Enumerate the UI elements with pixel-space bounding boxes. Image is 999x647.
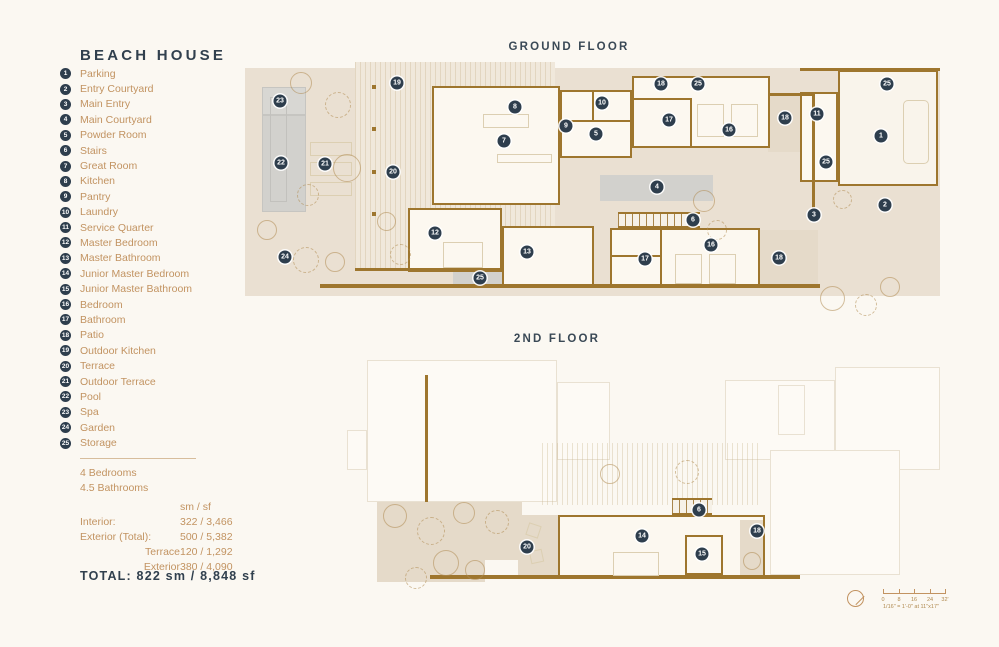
ruler-tick (883, 589, 884, 594)
plant-icon (820, 286, 845, 311)
legend-item-patio: 18Patio (60, 328, 260, 343)
legend-item-master-bathroom: 13Master Bathroom (60, 251, 260, 266)
room-marker-25: 25 (881, 78, 894, 91)
perimeter-wall-bottom (320, 284, 820, 288)
pergola-post (372, 212, 376, 216)
second-floor-plan: 614151820 (345, 352, 940, 584)
room-service-quarter (800, 92, 838, 182)
suite1-divider (690, 100, 692, 146)
room-marker-13: 13 (521, 246, 534, 259)
legend-number: 2 (60, 84, 71, 95)
plant-icon (465, 560, 485, 580)
legend-item-bathroom: 17Bathroom (60, 312, 260, 327)
area-stats: 4 Bedrooms 4.5 Bathrooms sm / sf Interio… (80, 466, 260, 575)
legend-label: Outdoor Terrace (80, 376, 156, 388)
patio-panel (757, 230, 818, 287)
legend-number: 23 (60, 407, 71, 418)
room-marker-11: 11 (811, 108, 824, 121)
plant-icon (257, 220, 277, 240)
room-marker-20: 20 (521, 541, 534, 554)
car-outline (903, 100, 929, 164)
room-marker-9: 9 (560, 120, 573, 133)
legend-label: Outdoor Kitchen (80, 345, 156, 357)
room-marker-1: 1 (875, 130, 888, 143)
legend-label: Great Room (80, 160, 137, 172)
plant-icon (675, 460, 699, 484)
room-marker-6: 6 (687, 214, 700, 227)
room-marker-23: 23 (274, 95, 287, 108)
legend-number: 10 (60, 207, 71, 218)
room-marker-18: 18 (655, 78, 668, 91)
legend-label: Pool (80, 391, 101, 403)
plant-icon (600, 464, 620, 484)
utility-divider (562, 120, 630, 122)
legend-item-garden: 24Garden (60, 420, 260, 435)
legend-label: Bedroom (80, 299, 123, 311)
legend-number: 18 (60, 330, 71, 341)
legend-item-storage: 25Storage (60, 435, 260, 450)
plant-icon (485, 510, 509, 534)
ruler-tick-label: 16 (911, 597, 917, 603)
legend-number: 24 (60, 422, 71, 433)
legend-label: Junior Master Bathroom (80, 283, 192, 295)
legend-number: 5 (60, 130, 71, 141)
legend-label: Storage (80, 437, 117, 449)
suite1-divider (634, 98, 692, 100)
legend-item-master-bedroom: 12Master Bedroom (60, 235, 260, 250)
legend-label: Terrace (80, 360, 115, 372)
wall-segment (425, 375, 428, 505)
legend-number: 13 (60, 253, 71, 264)
wall-segment (768, 93, 815, 96)
stats-rows: Interior:322 / 3,466Exterior (Total):500… (80, 515, 260, 575)
room-marker-7: 7 (498, 135, 511, 148)
plant-icon (743, 552, 761, 570)
roof-outline (770, 450, 900, 575)
legend-number: 25 (60, 438, 71, 449)
roof-outline (367, 360, 557, 502)
plant-icon (880, 277, 900, 297)
stats-row: Exterior (Total):500 / 5,382 (80, 530, 260, 545)
ground-floor-plan: 1234567891011121316161717181818192021222… (245, 62, 940, 300)
room-marker-8: 8 (509, 101, 522, 114)
plant-icon (325, 252, 345, 272)
room-marker-14: 14 (636, 530, 649, 543)
legend-number: 14 (60, 268, 71, 279)
legend-item-pool: 22Pool (60, 389, 260, 404)
plant-icon (297, 184, 319, 206)
storage-top-wall (800, 68, 940, 71)
plant-icon (325, 92, 351, 118)
legend-item-service-quarter: 11Service Quarter (60, 220, 260, 235)
legend-item-main-entry: 3Main Entry (60, 97, 260, 112)
room-marker-22: 22 (275, 157, 288, 170)
legend-label: Main Entry (80, 98, 130, 110)
legend-item-kitchen: 8Kitchen (60, 174, 260, 189)
legend-item-parking: 1Parking (60, 66, 260, 81)
room-marker-17: 17 (663, 114, 676, 127)
dining-table (483, 114, 529, 128)
legend-item-pantry: 9Pantry (60, 189, 260, 204)
room-marker-19: 19 (391, 77, 404, 90)
room-marker-4: 4 (651, 181, 664, 194)
legend-item-great-room: 7Great Room (60, 158, 260, 173)
legend-item-laundry: 10Laundry (60, 205, 260, 220)
room-marker-5: 5 (590, 128, 603, 141)
plant-icon (855, 294, 877, 316)
room-marker-21: 21 (319, 158, 332, 171)
room-marker-18: 18 (779, 112, 792, 125)
plant-icon (833, 190, 852, 209)
stats-row: Terrace120 / 1,292 (80, 545, 260, 560)
legend-item-outdoor-kitchen: 19Outdoor Kitchen (60, 343, 260, 358)
ruler-tick-label: 8 (897, 597, 900, 603)
plant-icon (377, 212, 396, 231)
master-bed-outline (443, 242, 483, 268)
ruler-tick (945, 589, 946, 594)
legend-label: Garden (80, 422, 115, 434)
room-marker-10: 10 (596, 97, 609, 110)
legend-label: Entry Courtyard (80, 83, 154, 95)
ruler-tick (930, 589, 931, 594)
room-marker-6: 6 (693, 504, 706, 517)
room-marker-2: 2 (879, 199, 892, 212)
legend-label: Powder Room (80, 129, 147, 141)
legend-label: Kitchen (80, 175, 115, 187)
legend-number: 17 (60, 314, 71, 325)
legend-item-outdoor-terrace: 21Outdoor Terrace (60, 374, 260, 389)
legend-number: 8 (60, 176, 71, 187)
legend-number: 6 (60, 145, 71, 156)
legend-item-stairs: 6Stairs (60, 143, 260, 158)
total-area: TOTAL: 822 sm / 8,848 sf (80, 569, 256, 583)
utility-divider (592, 92, 594, 122)
ruler-tick (914, 589, 915, 594)
legend-number: 21 (60, 376, 71, 387)
legend-number: 3 (60, 99, 71, 110)
bathrooms-count: 4.5 Bathrooms (80, 481, 260, 496)
room-marker-20: 20 (387, 166, 400, 179)
legend-label: Master Bedroom (80, 237, 158, 249)
legend-label: Junior Master Bedroom (80, 268, 189, 280)
kitchen-island (497, 154, 552, 163)
plant-icon (693, 190, 715, 212)
legend-item-entry-courtyard: 2Entry Courtyard (60, 81, 260, 96)
suite2-divider (660, 230, 662, 286)
legend-number: 16 (60, 299, 71, 310)
legend-label: Parking (80, 68, 116, 80)
ground-floor-title: GROUND FLOOR (439, 41, 699, 53)
plant-icon (707, 220, 727, 240)
legend-number: 7 (60, 161, 71, 172)
plant-icon (405, 567, 427, 589)
legend-item-spa: 23Spa (60, 405, 260, 420)
legend-item-terrace: 20Terrace (60, 358, 260, 373)
legend-number: 22 (60, 391, 71, 402)
room-marker-12: 12 (429, 227, 442, 240)
legend-label: Spa (80, 406, 99, 418)
room-marker-25: 25 (474, 272, 487, 285)
ruler-tick-label: 0 (881, 597, 884, 603)
ruler-tick-label: 32' (941, 597, 948, 603)
plant-icon (433, 550, 459, 576)
bedrooms-count: 4 Bedrooms (80, 466, 260, 481)
room-marker-25: 25 (692, 78, 705, 91)
room-legend: 1Parking2Entry Courtyard3Main Entry4Main… (60, 66, 260, 451)
legend-label: Bathroom (80, 314, 126, 326)
room-junior-master-suite (558, 515, 765, 578)
legend-number: 20 (60, 361, 71, 372)
bed-outline (709, 254, 736, 284)
roof-outline (347, 430, 367, 470)
legend-number: 15 (60, 284, 71, 295)
page-title: BEACH HOUSE (80, 47, 226, 64)
ruler-tick (899, 589, 900, 594)
room-marker-3: 3 (808, 209, 821, 222)
pergola-post (372, 170, 376, 174)
legend-number: 4 (60, 114, 71, 125)
legend-item-powder-room: 5Powder Room (60, 128, 260, 143)
scale-bar-group: 08162432' 1/16" = 1'-0" at 11"x17" (845, 585, 965, 617)
plant-icon (333, 154, 361, 182)
plant-icon (417, 517, 445, 545)
legend-label: Main Courtyard (80, 114, 152, 126)
legend-number: 19 (60, 345, 71, 356)
room-marker-18: 18 (751, 525, 764, 538)
plant-icon (293, 247, 319, 273)
scale-ruler: 08162432' (883, 589, 945, 597)
room-marker-15: 15 (696, 548, 709, 561)
stats-unit-header: sm / sf (80, 500, 260, 515)
pool-lane (270, 97, 287, 202)
legend-label: Master Bathroom (80, 252, 161, 264)
legend-label: Laundry (80, 206, 118, 218)
skylight-outline (778, 385, 805, 435)
room-marker-25: 25 (820, 156, 833, 169)
legend-label: Pantry (80, 191, 110, 203)
north-arrow-icon (847, 590, 864, 607)
stats-divider (80, 458, 196, 459)
room-marker-24: 24 (279, 251, 292, 264)
bed-outline (697, 104, 724, 137)
plant-icon (453, 502, 475, 524)
legend-number: 9 (60, 191, 71, 202)
ruler-tick-label: 24 (927, 597, 933, 603)
pergola-post (372, 127, 376, 131)
legend-number: 1 (60, 68, 71, 79)
legend-item-main-courtyard: 4Main Courtyard (60, 112, 260, 127)
room-great-room-kitchen (432, 86, 560, 205)
legend-number: 12 (60, 237, 71, 248)
legend-item-junior-master-bedroom: 14Junior Master Bedroom (60, 266, 260, 281)
bed-outline (675, 254, 702, 284)
bed-outline (613, 552, 659, 576)
stats-row: Interior:322 / 3,466 (80, 515, 260, 530)
suite2-divider (612, 255, 662, 257)
deck-boardwalk (542, 443, 760, 505)
legend-number: 11 (60, 222, 71, 233)
pergola-post (372, 85, 376, 89)
room-marker-17: 17 (639, 253, 652, 266)
legend-label: Stairs (80, 145, 107, 157)
room-marker-18: 18 (773, 252, 786, 265)
legend-item-bedroom: 16Bedroom (60, 297, 260, 312)
room-master-bathroom (502, 226, 594, 288)
legend-label: Patio (80, 329, 104, 341)
scale-note: 1/16" = 1'-0" at 11"x17" (883, 604, 939, 610)
plant-icon (383, 504, 407, 528)
plant-icon (390, 244, 411, 265)
room-marker-16: 16 (723, 124, 736, 137)
plant-icon (290, 72, 312, 94)
room-marker-16: 16 (705, 239, 718, 252)
legend-item-junior-master-bathroom: 15Junior Master Bathroom (60, 281, 260, 296)
second-floor-title: 2ND FLOOR (427, 333, 687, 345)
north-needle (855, 596, 864, 605)
legend-label: Service Quarter (80, 222, 154, 234)
